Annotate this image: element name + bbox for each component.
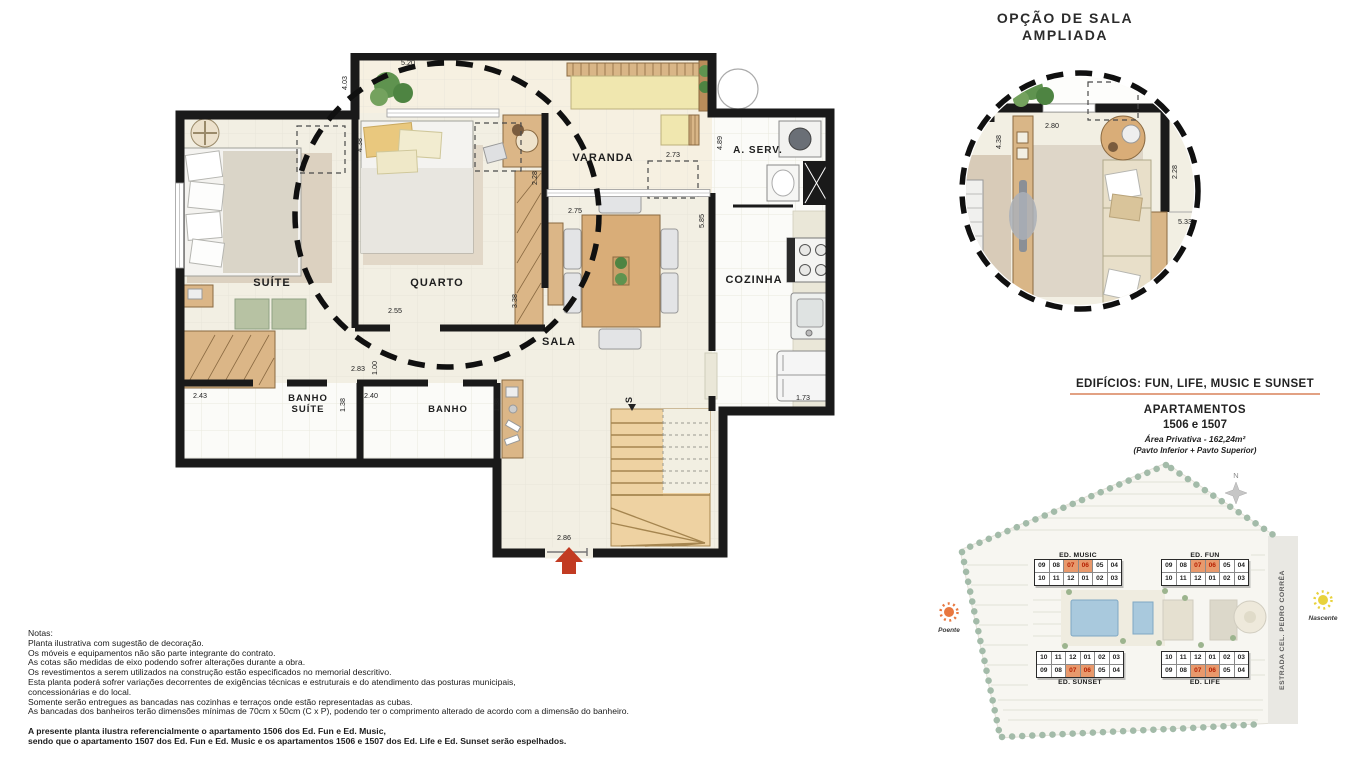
- unit-number: 04: [1234, 560, 1249, 572]
- svg-text:1.00: 1.00: [370, 361, 379, 375]
- unit-row: 090807060504: [1037, 664, 1123, 677]
- unit-row: 090807060504: [1162, 560, 1248, 572]
- unit-number: 08: [1049, 560, 1064, 572]
- compass-icon: N: [1225, 471, 1247, 504]
- unit-number: 04: [1109, 665, 1124, 677]
- unit-number: 05: [1219, 665, 1234, 677]
- building-label: ED. LIFE: [1152, 679, 1258, 686]
- info-block: EDIFÍCIOS: FUN, LIFE, MUSIC E SUNSET APA…: [1035, 374, 1355, 455]
- site-plan: N ESTRADA CEL. PEDRO CORRÊA Poente Nasce…: [933, 460, 1347, 762]
- room-label-aserv: A. SERV.: [733, 145, 783, 156]
- unit-number: 09: [1162, 665, 1176, 677]
- unit-number: 02: [1219, 573, 1234, 585]
- unit-number: 11: [1176, 573, 1191, 585]
- building-ed-fun: ED. FUN 090807060504 101112010203: [1161, 559, 1249, 586]
- detail-option-plan: 4.38 2.80 2.28 5.33: [953, 60, 1207, 322]
- unit-number: 10: [1035, 573, 1049, 585]
- floors-note: (Pavto Inferior + Pavto Superior): [1035, 446, 1355, 455]
- detail-option-title: OPÇÃO DE SALA AMPLIADA: [940, 10, 1190, 44]
- unit-row: 101112010203: [1037, 652, 1123, 664]
- unit-number: 05: [1219, 560, 1234, 572]
- main-floor-plan: SUÍTE QUARTO VARANDA SALA COZINHA A. SER…: [175, 53, 835, 585]
- building-label: ED. SUNSET: [1027, 679, 1133, 686]
- unit-number: 10: [1162, 573, 1176, 585]
- room-label-banho: BANHO: [428, 404, 468, 415]
- unit-number: 08: [1176, 560, 1191, 572]
- unit-number: 03: [1234, 652, 1249, 664]
- note-bold-line: sendo que o apartamento 1507 dos Ed. Fun…: [28, 737, 668, 747]
- sun-east-label: Nascente: [1309, 615, 1338, 622]
- unit-number: 07: [1065, 665, 1080, 677]
- unit-number: 09: [1035, 560, 1049, 572]
- sun-east-icon: Nascente: [1309, 592, 1338, 623]
- svg-text:4.38: 4.38: [994, 135, 1003, 149]
- room-label-suite: SUÍTE: [253, 276, 290, 289]
- apartment-numbers: 1506 e 1507: [1035, 419, 1355, 431]
- svg-text:2.86: 2.86: [557, 533, 571, 542]
- building-label: ED. FUN: [1152, 552, 1258, 559]
- svg-text:3.38: 3.38: [510, 294, 519, 308]
- notes-block: Notas: Planta ilustrativa com sugestão d…: [28, 629, 668, 747]
- apartments-label: APARTAMENTOS: [1035, 404, 1355, 416]
- svg-text:2.73: 2.73: [666, 150, 680, 159]
- svg-text:4.89: 4.89: [715, 136, 724, 150]
- unit-number: 10: [1162, 652, 1176, 664]
- sun-west-label: Poente: [938, 627, 960, 634]
- note-line: As bancadas dos banheiros terão dimensõe…: [28, 707, 668, 717]
- unit-number: 06: [1205, 560, 1220, 572]
- svg-text:4.03: 4.03: [340, 76, 349, 90]
- svg-text:5.20: 5.20: [401, 58, 415, 67]
- room-label-quarto: QUARTO: [410, 277, 463, 289]
- unit-number: 11: [1176, 652, 1191, 664]
- unit-number: 10: [1037, 652, 1051, 664]
- unit-number: 09: [1037, 665, 1051, 677]
- unit-row: 090807060504: [1162, 664, 1248, 677]
- unit-number: 12: [1065, 652, 1080, 664]
- svg-text:2.28: 2.28: [1170, 165, 1179, 179]
- unit-number: 04: [1107, 560, 1122, 572]
- site-plan-map: N ESTRADA CEL. PEDRO CORRÊA Poente Nasce…: [933, 460, 1347, 762]
- svg-text:N: N: [1233, 471, 1238, 480]
- unit-number: 03: [1107, 573, 1122, 585]
- svg-text:4.38: 4.38: [355, 138, 364, 152]
- unit-number: 01: [1080, 652, 1095, 664]
- unit-number: 11: [1049, 573, 1064, 585]
- pool: [1071, 600, 1118, 636]
- stairs: [611, 409, 710, 546]
- room-label-sala: SALA: [542, 336, 576, 348]
- unit-row: 101112010203: [1162, 652, 1248, 664]
- svg-text:5.33: 5.33: [1178, 217, 1192, 226]
- building-ed-sunset: 101112010203 090807060504 ED. SUNSET: [1036, 651, 1124, 678]
- unit-number: 01: [1205, 652, 1220, 664]
- unit-number: 07: [1190, 560, 1205, 572]
- svg-text:2.40: 2.40: [364, 391, 378, 400]
- unit-number: 06: [1205, 665, 1220, 677]
- unit-number: 01: [1205, 573, 1220, 585]
- sun-west-icon: Poente: [938, 604, 960, 635]
- svg-text:2.43: 2.43: [193, 391, 207, 400]
- room-label-banho-suite-1: BANHO: [288, 393, 328, 404]
- unit-number: 12: [1063, 573, 1078, 585]
- room-label-cozinha: COZINHA: [725, 274, 782, 286]
- unit-number: 01: [1078, 573, 1093, 585]
- unit-number: 02: [1094, 652, 1109, 664]
- unit-number: 04: [1234, 665, 1249, 677]
- svg-text:1.73: 1.73: [796, 393, 810, 402]
- unit-number: 08: [1051, 665, 1066, 677]
- unit-number: 03: [1234, 573, 1249, 585]
- svg-text:5.85: 5.85: [697, 214, 706, 228]
- svg-text:1.38: 1.38: [492, 398, 501, 412]
- unit-number: 03: [1109, 652, 1124, 664]
- unit-number: 05: [1094, 665, 1109, 677]
- unit-number: 08: [1176, 665, 1191, 677]
- unit-number: 12: [1190, 652, 1205, 664]
- svg-text:2.28: 2.28: [530, 171, 539, 185]
- room-label-banho-suite-2: SUÍTE: [292, 404, 325, 415]
- round-table: [718, 69, 758, 109]
- unit-number: 06: [1080, 665, 1095, 677]
- unit-number: 11: [1051, 652, 1066, 664]
- building-ed-music: ED. MUSIC 090807060504 101112010203: [1034, 559, 1122, 586]
- unit-number: 05: [1092, 560, 1107, 572]
- unit-number: 02: [1092, 573, 1107, 585]
- road-label: ESTRADA CEL. PEDRO CORRÊA: [1277, 570, 1286, 690]
- buildings-title: EDIFÍCIOS: FUN, LIFE, MUSIC E SUNSET: [1070, 378, 1320, 395]
- floor-plan-page: SUÍTE QUARTO VARANDA SALA COZINHA A. SER…: [0, 0, 1363, 769]
- svg-text:2.80: 2.80: [1045, 121, 1059, 130]
- unit-row: 101112010203: [1035, 572, 1121, 585]
- unit-number: 07: [1063, 560, 1078, 572]
- unit-number: 02: [1219, 652, 1234, 664]
- private-area: Área Privativa - 162,24m²: [1035, 434, 1355, 444]
- svg-text:2.83: 2.83: [351, 364, 365, 373]
- svg-text:1.38: 1.38: [338, 398, 347, 412]
- unit-number: 06: [1078, 560, 1093, 572]
- svg-text:2.55: 2.55: [388, 306, 402, 315]
- building-label: ED. MUSIC: [1025, 552, 1131, 559]
- unit-row: 101112010203: [1162, 572, 1248, 585]
- unit-number: 09: [1162, 560, 1176, 572]
- room-label-varanda: VARANDA: [572, 152, 633, 164]
- svg-text:2.75: 2.75: [568, 206, 582, 215]
- unit-row: 090807060504: [1035, 560, 1121, 572]
- stairs-direction-label: S: [624, 397, 634, 403]
- unit-number: 12: [1190, 573, 1205, 585]
- building-ed-life: 101112010203 090807060504 ED. LIFE: [1161, 651, 1249, 678]
- unit-number: 07: [1190, 665, 1205, 677]
